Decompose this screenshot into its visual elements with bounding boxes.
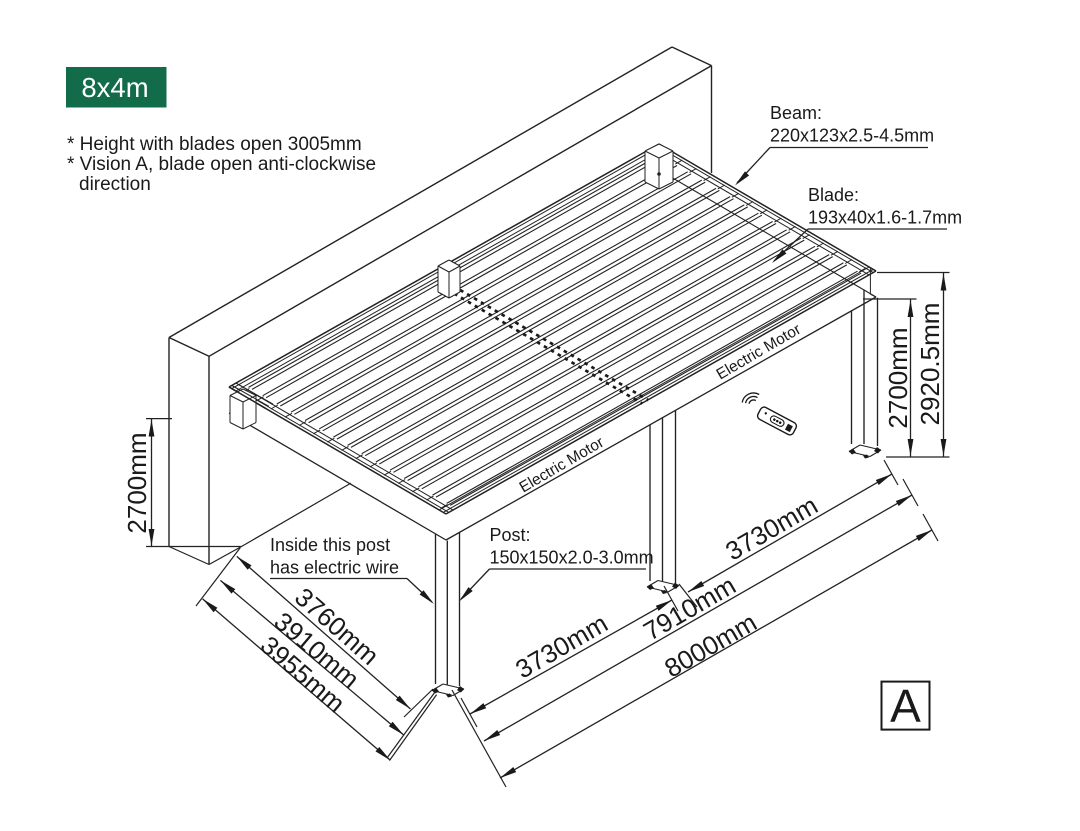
svg-text:2920.5mm: 2920.5mm <box>915 303 945 426</box>
svg-text:8x4m: 8x4m <box>81 72 148 103</box>
svg-text:Inside this post: Inside this post <box>270 535 390 555</box>
svg-text:2700mm: 2700mm <box>122 432 152 533</box>
svg-text:* Vision A, blade open anti-cl: * Vision A, blade open anti-clockwise <box>67 154 376 175</box>
svg-text:2700mm: 2700mm <box>883 327 913 428</box>
svg-text:Post:: Post: <box>490 525 531 545</box>
svg-text:Beam:: Beam: <box>770 103 822 123</box>
svg-text:A: A <box>890 680 921 732</box>
svg-text:has electric wire: has electric wire <box>270 558 399 578</box>
svg-text:Blade:: Blade: <box>808 185 859 205</box>
svg-text:* Height with blades open 3005: * Height with blades open 3005mm <box>67 134 362 155</box>
svg-text:direction: direction <box>79 174 151 195</box>
svg-text:220x123x2.5-4.5mm: 220x123x2.5-4.5mm <box>770 126 934 146</box>
svg-text:193x40x1.6-1.7mm: 193x40x1.6-1.7mm <box>808 208 962 228</box>
svg-text:150x150x2.0-3.0mm: 150x150x2.0-3.0mm <box>490 548 654 568</box>
